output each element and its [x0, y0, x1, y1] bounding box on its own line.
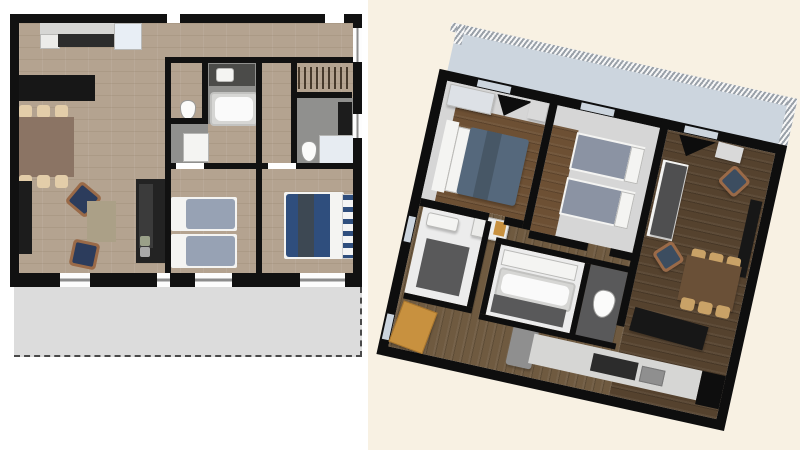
door-opening [268, 163, 296, 169]
dining-chair [37, 175, 50, 188]
entrance-door-opening [325, 14, 344, 23]
wall [202, 63, 208, 118]
wall [291, 63, 297, 169]
sofa-pillow [140, 247, 150, 257]
window [353, 114, 362, 138]
wall [256, 63, 262, 169]
shower-tray [183, 133, 209, 162]
fridge [114, 23, 142, 50]
kitchen-cabinet-dark [58, 34, 114, 47]
wall [256, 169, 262, 273]
door-opening [176, 163, 204, 169]
wall [165, 118, 208, 124]
window [195, 273, 232, 287]
window [60, 273, 90, 287]
single-bed-duvet [186, 236, 235, 266]
dining-chair [55, 175, 68, 188]
sofa-pillow [140, 236, 150, 246]
window [157, 273, 170, 287]
window [300, 273, 345, 287]
glass-shower [319, 135, 354, 164]
bath-sink [216, 68, 234, 82]
balcony-terrace [14, 287, 362, 357]
kitchen-island [19, 75, 95, 101]
bathtub-basin [215, 97, 253, 121]
door-opening [167, 14, 180, 23]
sideboard [19, 181, 32, 254]
wall [10, 14, 362, 23]
wardrobe-closet-hatch [298, 67, 352, 89]
bathtub [210, 92, 258, 126]
armchair [68, 238, 100, 270]
dining-table [15, 117, 74, 177]
armchair-cushion [72, 242, 97, 267]
wall [165, 57, 362, 63]
wall [291, 92, 352, 98]
double-bed-throw [298, 194, 314, 257]
wall [10, 14, 19, 287]
window [353, 28, 362, 62]
area-rug [87, 201, 116, 242]
kitchen-cabinet-white [40, 34, 60, 49]
single-bed-duvet [186, 199, 235, 229]
floor-plan-2d[interactable] [10, 14, 362, 357]
